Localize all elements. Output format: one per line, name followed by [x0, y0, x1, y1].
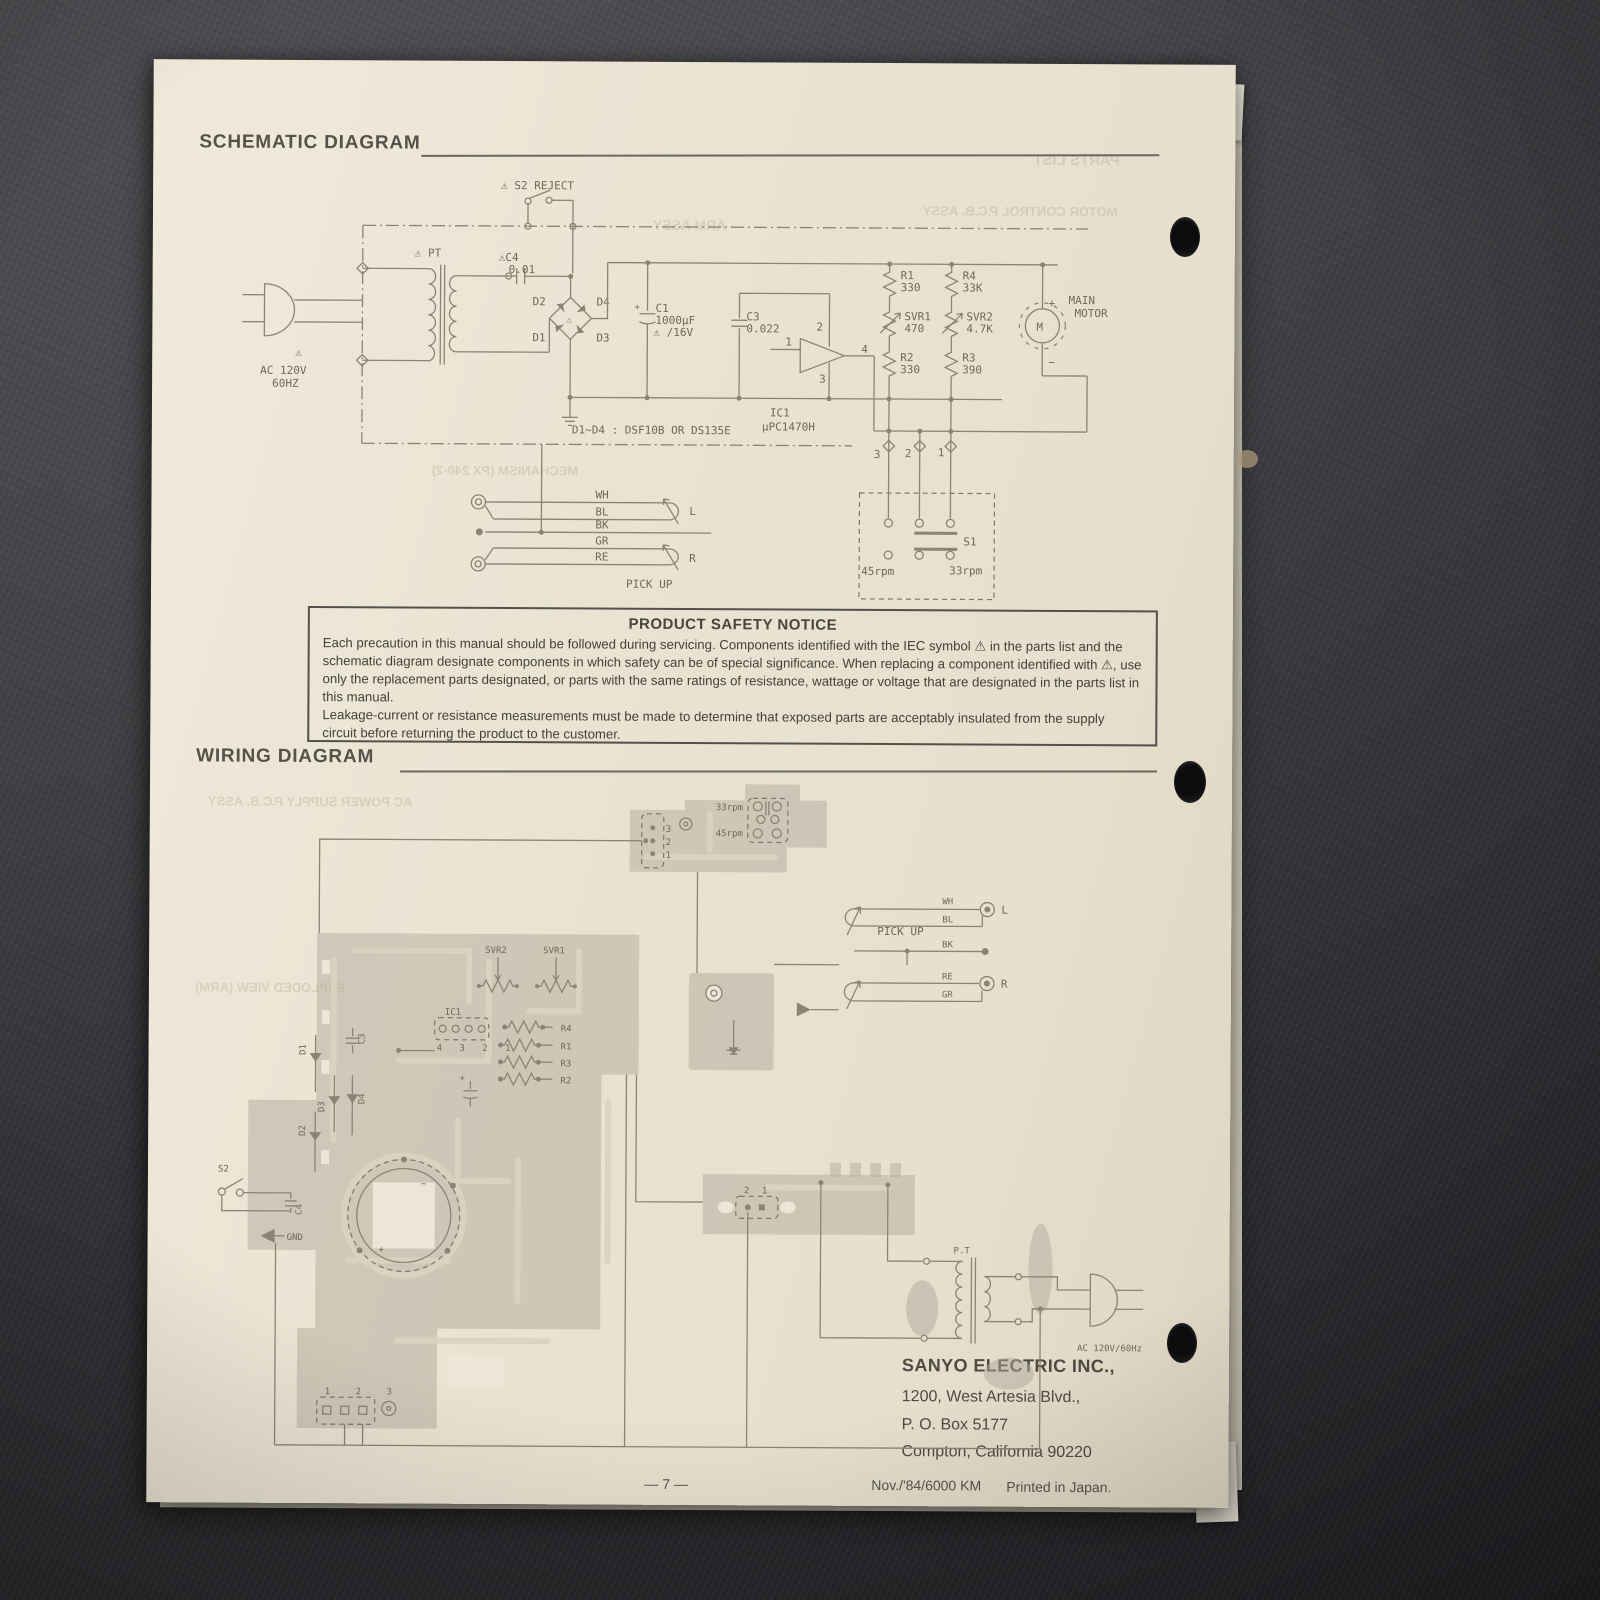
channel-l: L [689, 505, 696, 518]
ac-freq-label: 60HZ [272, 377, 299, 390]
ground-plate [688, 964, 839, 1071]
terminal-board: 2 1 [702, 1162, 923, 1448]
wiring-c3: C3 [358, 1033, 368, 1044]
d3-label: D3 [596, 331, 609, 344]
motor-minus: − [1048, 356, 1055, 369]
motor-control-pcb: + − SVR2 SVR1 IC1 4 3 2 1 [217, 933, 705, 1448]
capacitor-c3: C3 0.022 [731, 293, 830, 401]
motor-plus: + [1048, 297, 1055, 310]
wiring-bk: BK [942, 940, 953, 950]
ac-voltage-label: AC 120V [260, 364, 307, 377]
paper-stain [1236, 450, 1258, 468]
resistor-network: R1 330 R4 33K SVR1 470 SVR2 4.7K R2 330 … [880, 261, 994, 402]
wire-bl: BL [595, 505, 609, 518]
conn-pin-3: 3 [666, 825, 671, 835]
diagrams-svg: ⚠ AC 120V 60HZ ⚠ PT ⚠ S2 REJECT [146, 59, 1236, 1508]
bridge-warning-icon: ⚠ [566, 315, 572, 325]
photo-scene: PARTS LIST MOTOR CONTROL P.C.B. ASSY ARM… [0, 0, 1600, 1600]
wire-wh: WH [595, 488, 608, 501]
opamp-pin4: 4 [861, 343, 868, 356]
capacitor-c1: + C1 1000μF ⚠ /16V [634, 260, 695, 400]
wire-gr: GR [595, 534, 609, 547]
d1-label: D1 [532, 331, 545, 344]
capacitor-c4: ⚠C4 0.01 [457, 251, 574, 285]
motor-pad-minus: − [421, 1180, 427, 1190]
rpm33-label: 33rpm [949, 564, 983, 577]
c3-value: 0.022 [746, 322, 779, 335]
diode-note: D1~D4 : DSF10B OR DS135E [572, 423, 731, 437]
terminal-pin-2: 2 [744, 1186, 749, 1196]
power-transformer: ⚠ PT [362, 246, 457, 364]
wiring-diagram: 3 2 1 33rpm 45rpm [217, 782, 1146, 1450]
wiring-svr2: SVR2 [485, 946, 507, 956]
punch-hole-bottom [1167, 1323, 1197, 1363]
ac-warning-icon: ⚠ [295, 346, 302, 359]
dc-plus-rail [608, 263, 1058, 265]
wiring-r4: R4 [561, 1024, 572, 1034]
wiring-r2: R2 [560, 1076, 571, 1086]
wiring-r3: R3 [561, 1059, 572, 1069]
svr1-value: 470 [904, 322, 924, 335]
boundary-rail [362, 443, 852, 446]
wiring-gr: GR [942, 990, 953, 1000]
wiring-re: RE [942, 972, 953, 982]
schematic-diagram: ⚠ AC 120V 60HZ ⚠ PT ⚠ S2 REJECT [241, 178, 1109, 601]
opamp-pin3: 3 [819, 373, 826, 386]
c4-value: 0.01 [509, 263, 536, 276]
s2-label: ⚠ S2 REJECT [501, 179, 574, 192]
wiring-d4: D4 [357, 1093, 367, 1104]
manual-page: PARTS LIST MOTOR CONTROL P.C.B. ASSY ARM… [146, 59, 1236, 1508]
r4-value: 33K [963, 281, 983, 294]
r3-value: 390 [962, 363, 982, 376]
wiring-cap-plus: + [459, 1074, 465, 1084]
top-rail [363, 225, 1088, 229]
wiring-33rpm: 33rpm [716, 803, 743, 813]
ic1-part: μPC1470H [762, 420, 815, 433]
wire-re: RE [595, 550, 608, 563]
terminal-1: 1 [938, 446, 945, 459]
wiring-s2: S2 [218, 1165, 229, 1175]
main-motor: M + − MAIN MOTOR [1019, 262, 1108, 432]
wiring-45rpm: 45rpm [716, 829, 743, 839]
wiring-channel-l: L [1001, 904, 1008, 917]
r2-value: 330 [900, 363, 920, 376]
bottom-connector-pins: 1 2 3 [325, 1387, 402, 1397]
ic1-label: IC1 [770, 406, 790, 419]
wiring-d2: D2 [298, 1125, 308, 1136]
conn-pin-1: 1 [666, 851, 671, 861]
motor-pad-plus: + [379, 1245, 385, 1255]
terminal-2: 2 [905, 447, 912, 460]
pickup-label: PICK UP [626, 578, 673, 591]
wiring-pickup: PICK UP WH BL BK RE GR L R [844, 897, 1008, 1010]
gnd-label: GND [287, 1233, 303, 1243]
wiring-svr1: SVR1 [543, 946, 565, 956]
wiring-ac-label: AC 120V/60Hz [1077, 1344, 1142, 1354]
wiring-ic1: IC1 [445, 1008, 461, 1018]
punch-hole-middle [1174, 761, 1206, 803]
wiring-d1: D1 [299, 1044, 309, 1055]
opamp-pin1: 1 [785, 335, 792, 348]
wiring-bl: BL [942, 915, 953, 925]
bridge-rectifier: ⚠ D2 D4 D1 D3 D1~D4 : DSF10B OR DS135E [456, 262, 732, 437]
wiring-gnd: GND [260, 1229, 303, 1445]
d2-label: D2 [532, 295, 545, 308]
terminal-pin-1: 1 [762, 1186, 767, 1196]
wiring-r1: R1 [561, 1042, 572, 1052]
c1-voltage: ⚠ /16V [653, 326, 693, 339]
svr2-value: 4.7K [966, 322, 993, 335]
pickup-wiring: WH BL BK GR RE L R PICK UP [471, 444, 712, 591]
wiring-channel-r: R [1001, 978, 1008, 991]
speed-switch-s1: 3 2 1 S1 45rpm 33rpm [859, 399, 995, 600]
r1-value: 330 [901, 281, 921, 294]
conn-pin-2: 2 [666, 838, 671, 848]
opamp-pin2: 2 [816, 321, 823, 334]
punch-hole-top [1170, 217, 1200, 257]
wiring-d3: D3 [317, 1101, 327, 1112]
opamp-ic1: 1 2 3 4 IC1 μPC1470H [762, 320, 1088, 435]
wiring-wh: WH [942, 897, 953, 907]
wire-bk: BK [595, 518, 609, 531]
wiring-c4: C4 [295, 1204, 305, 1215]
channel-r: R [689, 552, 696, 565]
wiring-pt: P.T [954, 1246, 971, 1256]
motor-m: M [1036, 321, 1043, 334]
dc-minus-rail [570, 397, 1002, 399]
wiring-pickup-label: PICK UP [877, 925, 924, 938]
motor-label-1: MAIN [1069, 294, 1096, 307]
terminal-3: 3 [874, 448, 881, 461]
c1-plus: + [634, 303, 640, 313]
motor-label-2: MOTOR [1074, 307, 1108, 320]
left-rail [362, 225, 363, 443]
s1-label: S1 [963, 535, 976, 548]
pt-label: ⚠ PT [415, 247, 442, 260]
rpm45-label: 45rpm [861, 565, 895, 578]
ac-plug: ⚠ AC 120V 60HZ [242, 262, 368, 390]
